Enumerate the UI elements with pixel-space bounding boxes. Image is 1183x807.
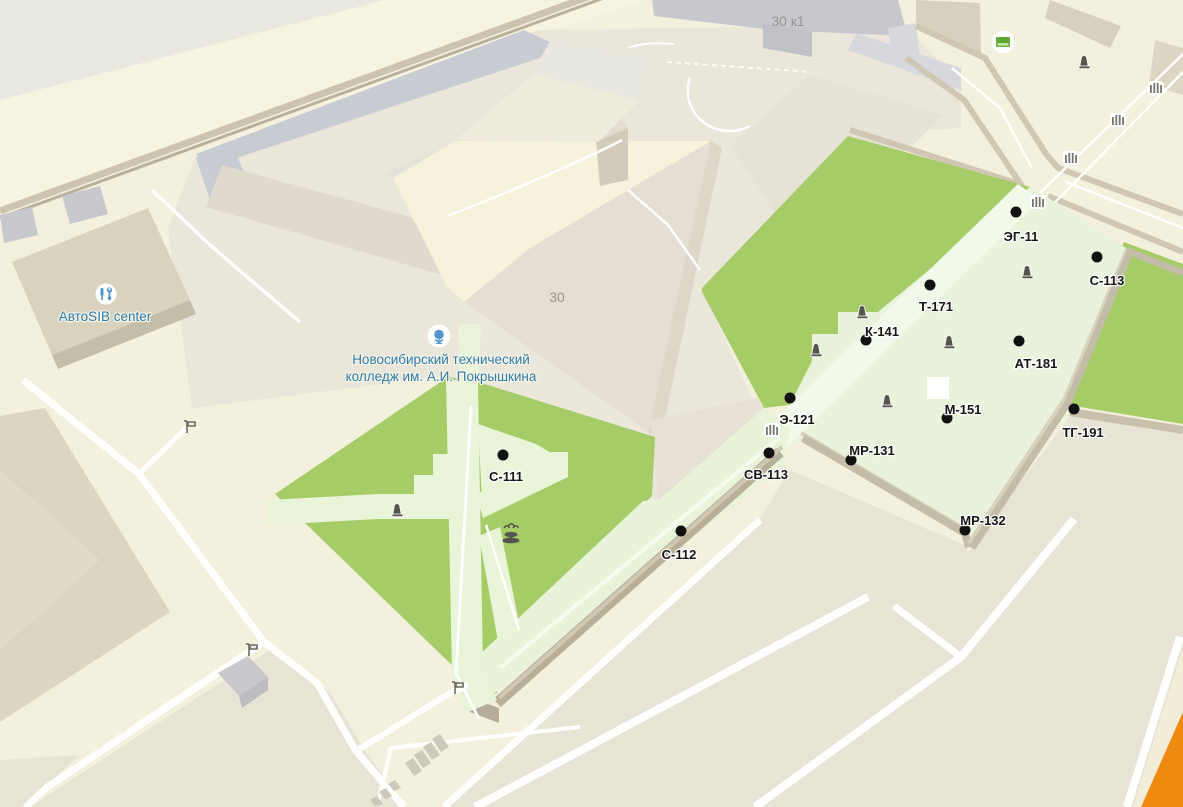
svg-text:АвтоSIB center: АвтоSIB center (59, 309, 152, 324)
svg-text:МР-131: МР-131 (849, 443, 895, 458)
svg-text:С-112: С-112 (662, 547, 697, 562)
svg-text:Т-171: Т-171 (919, 299, 953, 314)
svg-text:СВ-113: СВ-113 (744, 467, 788, 482)
svg-text:Э-121: Э-121 (779, 412, 814, 427)
svg-text:колледж им. А.И. Покрышкина: колледж им. А.И. Покрышкина (346, 369, 537, 384)
svg-text:АТ-181: АТ-181 (1015, 356, 1058, 371)
svg-text:С-111: С-111 (489, 469, 523, 484)
svg-text:30: 30 (549, 289, 565, 305)
svg-text:Новосибирский технический: Новосибирский технический (352, 352, 530, 367)
svg-text:М-151: М-151 (945, 402, 982, 417)
svg-text:К-141: К-141 (865, 324, 899, 339)
svg-text:ЭГ-11: ЭГ-11 (1004, 229, 1039, 244)
svg-text:МР-132: МР-132 (960, 513, 1006, 528)
svg-text:30 к1: 30 к1 (771, 13, 805, 29)
svg-text:С-113: С-113 (1090, 273, 1125, 288)
svg-text:ТГ-191: ТГ-191 (1062, 425, 1103, 440)
